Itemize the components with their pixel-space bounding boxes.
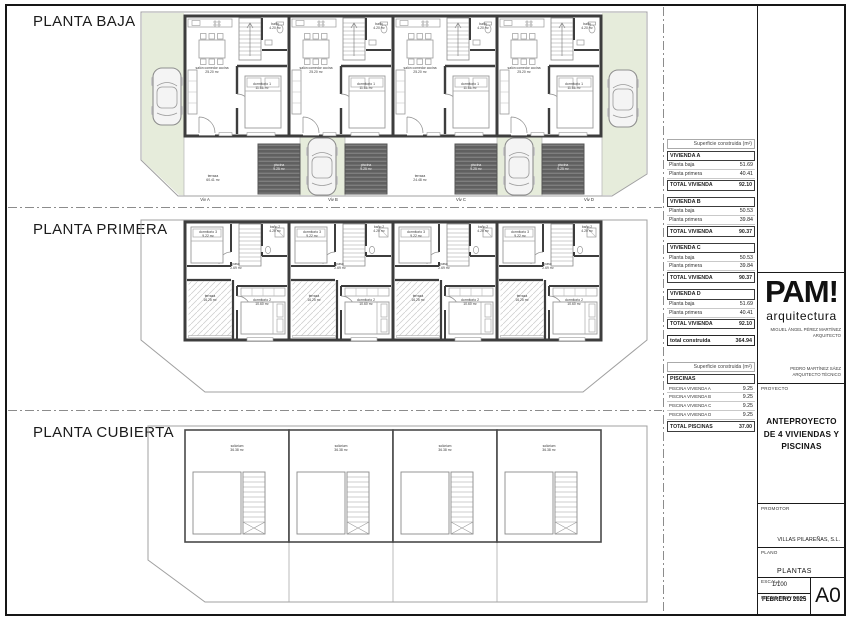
studio-logo-sub: arquitectura [758,309,845,323]
proyecto-label: PROYECTO [761,386,788,391]
room-label-solarium: solárium36.38 m² [542,444,555,453]
project-title: ANTEPROYECTO DE 4 VIVIENDAS Y PISCINAS [762,416,841,454]
table-row: PISCINA VIVIENDA C9.25 [667,402,755,411]
room-label-bano: baño4.20 m² [373,22,385,31]
column-divider [663,7,664,613]
planta-cubierta-drawing [0,412,660,612]
house-unit-b [289,222,393,341]
divider [758,593,811,594]
house-unit-b [289,16,393,136]
room-label-salon: salón comedor cocina25.20 m² [508,66,541,75]
divider [758,547,845,548]
room-label-terraza: terraza16.25 m² [203,294,216,303]
planta-primera-drawing [0,212,660,410]
fecha-value: FEBRERO 2025 [762,597,806,603]
room-label-terraza: terraza16.25 m² [515,294,528,303]
table-header: Superficie construida (m²) [667,362,755,372]
room-label-solarium: solárium36.38 m² [230,444,243,453]
table-row: Planta baja51.69 [667,300,755,309]
vivienda-gate-label: Viv C [456,197,466,202]
table-title: VIVIENDA D [667,289,755,300]
table-row: PISCINA VIVIENDA D9.25 [667,411,755,420]
car-icon [306,138,338,195]
room-label-terraza: terraza16.25 m² [307,294,320,303]
car-icon [607,70,639,127]
plano-value: PLANTAS [758,568,831,575]
table-total-row: TOTAL VIVIENDA92.10 [667,180,755,191]
table-title: VIVIENDA A [667,151,755,162]
room-label-salon: salón comedor cocina25.20 m² [196,66,229,75]
room-label-bano: baño4.20 m² [581,22,593,31]
room-label-piscina: piscina9.25 m² [557,163,569,172]
room-label-piscina: piscina9.25 m² [360,163,372,172]
room-label-bano2: baño 24.20 m² [269,225,281,234]
promotor-value: VILLAS PILAREÑAS, S.L. [777,537,840,543]
vivienda-gate-label: Viv B [328,197,338,202]
plano-label: PLANO [761,550,778,555]
promotor-label: PROMOTOR [761,506,790,511]
studio-logo: PAM! [758,276,845,307]
planta-primera-plan: dormitorio 39.22 m² dormitorio 39.22 m² … [0,212,660,410]
room-label-bano2: baño 24.20 m² [581,225,593,234]
table-row: PISCINA VIVIENDA B9.25 [667,393,755,402]
title-block: PAM! arquitectura MIGUEL ÁNGEL PÉREZ MAR… [757,6,845,614]
room-label-bano: baño4.20 m² [477,22,489,31]
table-row: Planta baja50.53 [667,253,755,262]
piscinas-table: PISCINAS PISCINA VIVIENDA A9.25 PISCINA … [667,374,755,432]
room-label-salon: salón comedor cocina25.20 m² [300,66,333,75]
house-unit-c [393,16,497,136]
room-label-dormitorio: dormitorio 111.86 m² [357,82,375,91]
table-title: VIVIENDA B [667,197,755,208]
technical-architect-credit: PEDRO MARTÍNEZ SÁEZARQUITECTO TÉCNICO [790,366,841,379]
room-label-dormitorio: dormitorio 111.86 m² [461,82,479,91]
room-label-paso: paso2.69 m² [230,262,242,271]
table-row: Planta primera40.41 [667,309,755,318]
room-label-dormitorio: dormitorio 111.86 m² [253,82,271,91]
table-total-row: TOTAL PISCINAS37.00 [667,421,755,432]
planta-baja-plan: salón comedor cocina25.20 m² salón comed… [0,8,660,208]
room-label-dormitorio3: dormitorio 39.22 m² [199,230,217,239]
house-unit-d [497,222,601,341]
room-label-dormitorio2: dormitorio 210.60 m² [565,298,583,307]
room-label-dormitorio: dormitorio 111.86 m² [565,82,583,91]
section-divider [8,207,662,208]
table-total-row: TOTAL VIVIENDA90.37 [667,226,755,237]
house-unit-d [497,16,601,136]
room-label-paso: paso2.69 m² [542,262,554,271]
room-label-dormitorio2: dormitorio 210.60 m² [461,298,479,307]
section-divider [8,410,662,411]
room-label-piscina: piscina9.25 m² [273,163,285,172]
table-title: PISCINAS [667,374,755,385]
room-label-terraza: terraza60.41 m² [206,174,219,183]
room-label-dormitorio2: dormitorio 210.60 m² [253,298,271,307]
planta-baja-drawing [0,8,660,208]
room-label-solarium: solárium36.38 m² [334,444,347,453]
table-row: PISCINA VIVIENDA A9.25 [667,384,755,393]
table-total-row: TOTAL VIVIENDA92.10 [667,319,755,330]
house-unit-c [393,222,497,341]
house-unit-a [185,222,289,341]
room-label-paso: paso2.69 m² [438,262,450,271]
vivienda-a-table: VIVIENDA A Planta baja51.69 Planta prime… [667,151,755,191]
room-label-terraza: terraza16.25 m² [411,294,424,303]
total-construida-row: total construida364.94 [667,335,755,346]
room-label-dormitorio3: dormitorio 39.22 m² [407,230,425,239]
room-label-bano2: baño 24.20 m² [373,225,385,234]
table-total-row: TOTAL VIVIENDA90.37 [667,272,755,283]
vivienda-c-table: VIVIENDA C Planta baja50.53 Planta prime… [667,243,755,283]
area-tables: Superficie construida (m²) VIVIENDA A Pl… [667,139,755,438]
table-row: Planta baja51.69 [667,161,755,170]
divider [758,272,845,273]
room-label-bano2: baño 24.20 m² [477,225,489,234]
vivienda-d-table: VIVIENDA D Planta baja51.69 Planta prime… [667,289,755,329]
room-label-dormitorio3: dormitorio 39.22 m² [511,230,529,239]
planta-cubierta-plan: solárium36.38 m² solárium36.38 m² solári… [0,412,660,612]
room-label-dormitorio2: dormitorio 210.60 m² [357,298,375,307]
room-label-terraza: terraza24.48 m² [413,174,426,183]
room-label-dormitorio3: dormitorio 39.22 m² [303,230,321,239]
room-label-salon: salón comedor cocina25.20 m² [404,66,437,75]
car-icon [503,138,535,195]
vivienda-gate-label: Viv A [200,197,209,202]
table-title: VIVIENDA C [667,243,755,254]
room-label-solarium: solárium36.38 m² [438,444,451,453]
table-row: Planta primera40.41 [667,170,755,179]
room-label-piscina: piscina9.25 m² [470,163,482,172]
vivienda-gate-label: Viv D [584,197,594,202]
table-row: Planta primera39.84 [667,262,755,271]
room-label-bano: baño4.20 m² [269,22,281,31]
architect-credit: MIGUEL ÁNGEL PÉREZ MARTÍNEZARQUITECTO [770,327,841,340]
vivienda-b-table: VIVIENDA B Planta baja50.53 Planta prime… [667,197,755,237]
divider [758,503,845,504]
table-row: Planta primera39.84 [667,216,755,225]
divider [758,383,845,384]
sheet-format: A0 [810,577,845,614]
table-row: Planta baja50.53 [667,207,755,216]
table-header: Superficie construida (m²) [667,139,755,149]
drawing-sheet: PLANTA BAJA salón comedor cocina25.20 m²… [0,0,850,620]
house-unit-a [185,16,289,136]
car-icon [151,68,183,125]
room-label-paso: paso2.69 m² [334,262,346,271]
escala-value: 1/100 [772,582,787,588]
